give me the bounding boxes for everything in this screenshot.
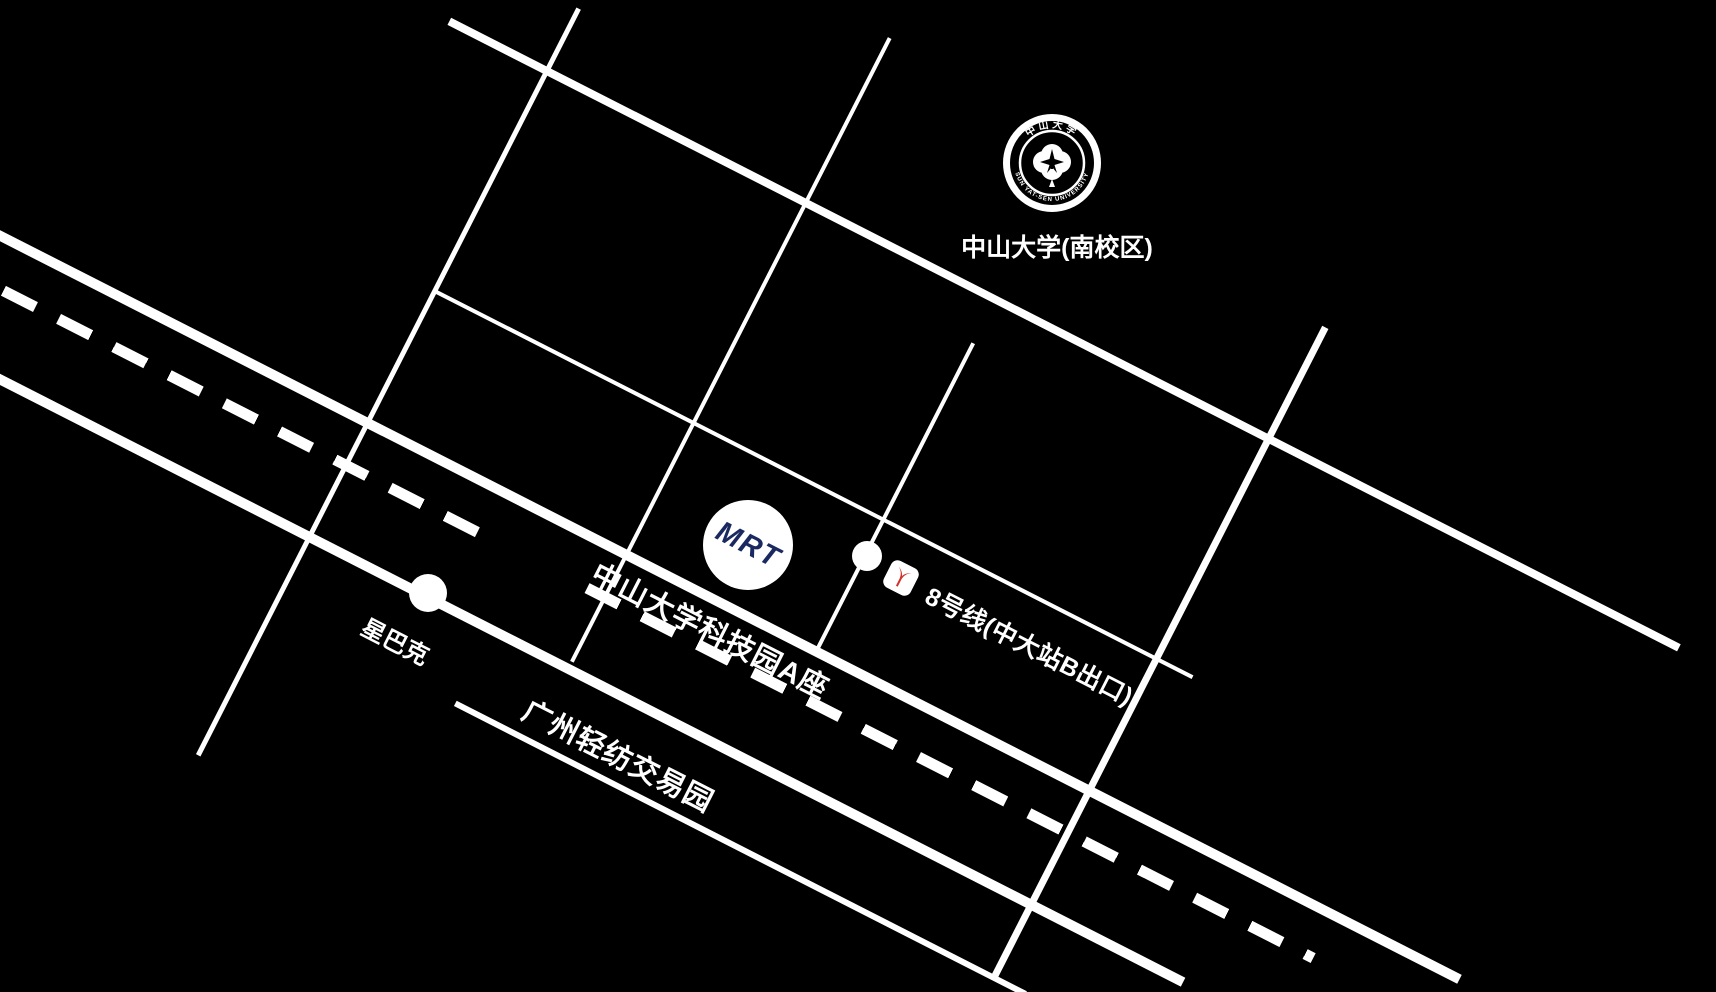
seal-emblem-icon [1033, 144, 1071, 187]
metro-line-label: 8号线(中大站B出口) [920, 577, 1140, 713]
university-seal: 中山大学 SUN YAT-SEN UNIVERSITY [1002, 113, 1102, 213]
guangzhou-metro-icon [881, 558, 921, 598]
starbucks-dot [409, 574, 447, 612]
university-label: 中山大学(南校区) [940, 228, 1174, 264]
map-canvas: 中山大学 SUN YAT-SEN UNIVERSITY 中山大学(南校区) MR… [0, 0, 1716, 992]
starbucks-label: 星巴克 [356, 608, 436, 672]
metro-station-dot [852, 541, 882, 571]
tech-park-label: 中山大学科技园A座 [585, 551, 837, 707]
mrt-building-marker: MRT [703, 500, 793, 590]
road-thin-parallel [434, 290, 1193, 679]
avenue-lower-edge [0, 372, 1185, 987]
mrt-logo-text: MRT [710, 515, 786, 575]
road-textile-south [454, 701, 1027, 992]
textile-park-label: 广州轻纺交易园 [516, 688, 722, 821]
